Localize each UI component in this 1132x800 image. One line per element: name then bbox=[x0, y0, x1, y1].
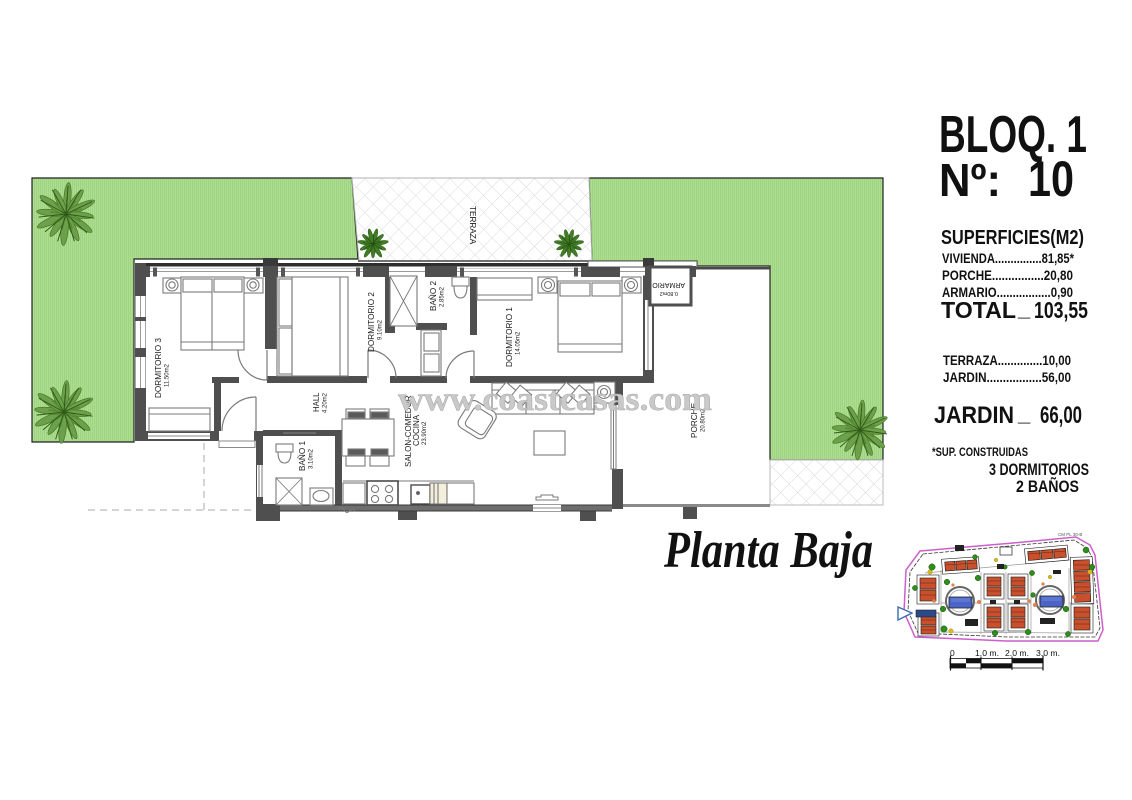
svg-text:3.10m2: 3.10m2 bbox=[309, 448, 315, 469]
svg-text:Nº:: Nº: bbox=[939, 154, 1001, 206]
svg-text:ARMARIO: ARMARIO bbox=[652, 281, 685, 288]
svg-text:2.0 m.: 2.0 m. bbox=[1005, 648, 1029, 658]
svg-text:TOTAL: TOTAL bbox=[941, 297, 1016, 323]
svg-text:66,00: 66,00 bbox=[1040, 402, 1082, 429]
svg-text:*SUP. CONSTRUIDAS: *SUP. CONSTRUIDAS bbox=[932, 445, 1028, 459]
svg-text:DORMITORIO 2: DORMITORIO 2 bbox=[367, 292, 376, 352]
svg-text:_: _ bbox=[1017, 296, 1031, 321]
svg-text:_: _ bbox=[1017, 401, 1031, 426]
svg-text:0.80m2: 0.80m2 bbox=[660, 290, 678, 296]
svg-text:2 BAÑOS: 2 BAÑOS bbox=[1016, 476, 1079, 496]
svg-text:PORCHE................20,80: PORCHE................20,80 bbox=[942, 268, 1073, 283]
svg-text:BAÑO 2: BAÑO 2 bbox=[428, 281, 438, 311]
svg-text:TERRAZA: TERRAZA bbox=[468, 206, 477, 245]
svg-text:23.90m2: 23.90m2 bbox=[422, 421, 428, 445]
svg-text:9.10m2: 9.10m2 bbox=[378, 319, 384, 340]
svg-text:DORMITORIO 1: DORMITORIO 1 bbox=[505, 307, 514, 367]
svg-text:JARDIN.................56,00: JARDIN.................56,00 bbox=[943, 370, 1071, 385]
svg-text:SUPERFICIES(M2): SUPERFICIES(M2) bbox=[941, 227, 1084, 249]
svg-text:1.0 m.: 1.0 m. bbox=[975, 648, 999, 658]
svg-text:VIVIENDA...............81,85*: VIVIENDA...............81,85* bbox=[942, 251, 1075, 266]
svg-text:DORMITORIO 3: DORMITORIO 3 bbox=[154, 338, 163, 398]
svg-text:10: 10 bbox=[1028, 151, 1074, 207]
svg-text:103,55: 103,55 bbox=[1034, 297, 1088, 323]
svg-text:3.0 m.: 3.0 m. bbox=[1036, 648, 1060, 658]
svg-text:Planta Baja: Planta Baja bbox=[663, 522, 873, 579]
svg-text:14.05m2: 14.05m2 bbox=[516, 331, 522, 355]
svg-text:4.20m2: 4.20m2 bbox=[323, 392, 329, 413]
svg-text:JARDIN: JARDIN bbox=[934, 402, 1014, 429]
svg-text:TERRAZA..............10,00: TERRAZA..............10,00 bbox=[943, 353, 1071, 368]
svg-text:www.coastcasas.com: www.coastcasas.com bbox=[398, 381, 712, 418]
svg-text:COCINA: COCINA bbox=[412, 414, 421, 446]
svg-text:CM PL 30-B: CM PL 30-B bbox=[1058, 532, 1082, 537]
svg-text:11.50m2: 11.50m2 bbox=[165, 363, 171, 387]
svg-text:2.85m2: 2.85m2 bbox=[440, 286, 446, 307]
svg-text:HALL: HALL bbox=[312, 392, 321, 412]
svg-text:BAÑO 1: BAÑO 1 bbox=[297, 441, 307, 471]
